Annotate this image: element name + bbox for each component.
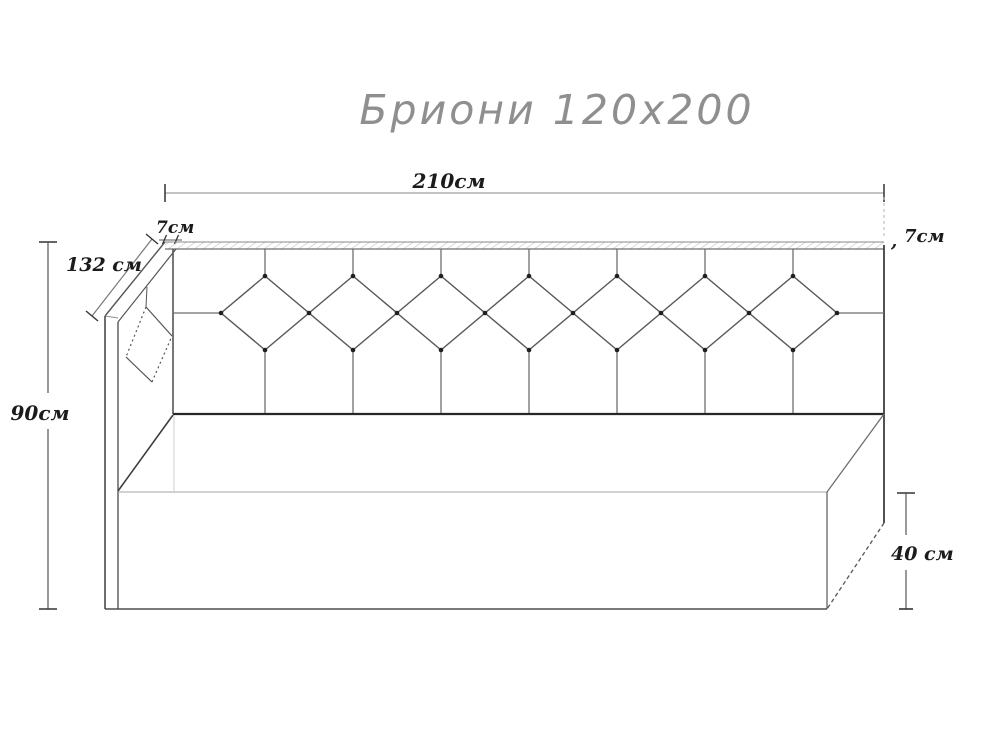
side-panel-top-connector xyxy=(105,316,118,318)
headboard-lower-seams xyxy=(265,350,793,413)
seat-top xyxy=(118,414,884,492)
headboard-upper-seams xyxy=(265,249,793,276)
dimension-total-height: 90см xyxy=(10,242,69,609)
dimension-base-height: 40 см xyxy=(891,493,954,609)
dimension-label-depth: 132 см xyxy=(66,254,142,276)
dimension-label-total-height: 90см xyxy=(10,401,69,425)
side-diamond-edge xyxy=(126,357,152,382)
side-diamond-edge-dotted xyxy=(152,336,172,382)
side-panel-diamond-tuft xyxy=(126,287,172,382)
tuft-buttons xyxy=(219,274,840,353)
top-band-hatch xyxy=(165,243,884,249)
dimension-label-left-thickness: 7см xyxy=(156,218,194,238)
dimension-left-thickness: 7см xyxy=(156,218,194,244)
base-box xyxy=(105,492,884,609)
headboard-front-face xyxy=(173,245,884,523)
left-side-panel xyxy=(105,242,176,609)
side-diamond-edge xyxy=(146,307,172,336)
dimension-label-right-thickness: 7см xyxy=(904,226,945,247)
headboard-diamond-tufts xyxy=(221,276,837,350)
side-diamond-seam xyxy=(146,287,147,307)
technical-drawing: Бриони 120x200 210см 7см 132 см 90см 40 … xyxy=(0,0,1000,750)
drawing-page: Бриони 120x200 210см 7см 132 см 90см 40 … xyxy=(0,0,1000,750)
dimension-top-width: 210см xyxy=(165,169,884,238)
dimension-label-base-height: 40 см xyxy=(891,543,954,565)
dimension-end-tick xyxy=(86,311,98,321)
seat-left-perspective-edge xyxy=(118,415,173,491)
drawing-title: Бриони 120x200 xyxy=(359,86,754,134)
dimension-label-top-width: 210см xyxy=(412,169,486,193)
seat-right-perspective-edge xyxy=(827,414,884,492)
label-right-thickness: , 7см xyxy=(890,226,945,252)
side-diamond-edge-dotted xyxy=(126,307,146,357)
dimension-line xyxy=(92,239,152,316)
leader-tick: , xyxy=(890,231,897,252)
headboard-top-band xyxy=(165,242,884,249)
base-bottom-right-perspective-edge xyxy=(827,523,884,609)
